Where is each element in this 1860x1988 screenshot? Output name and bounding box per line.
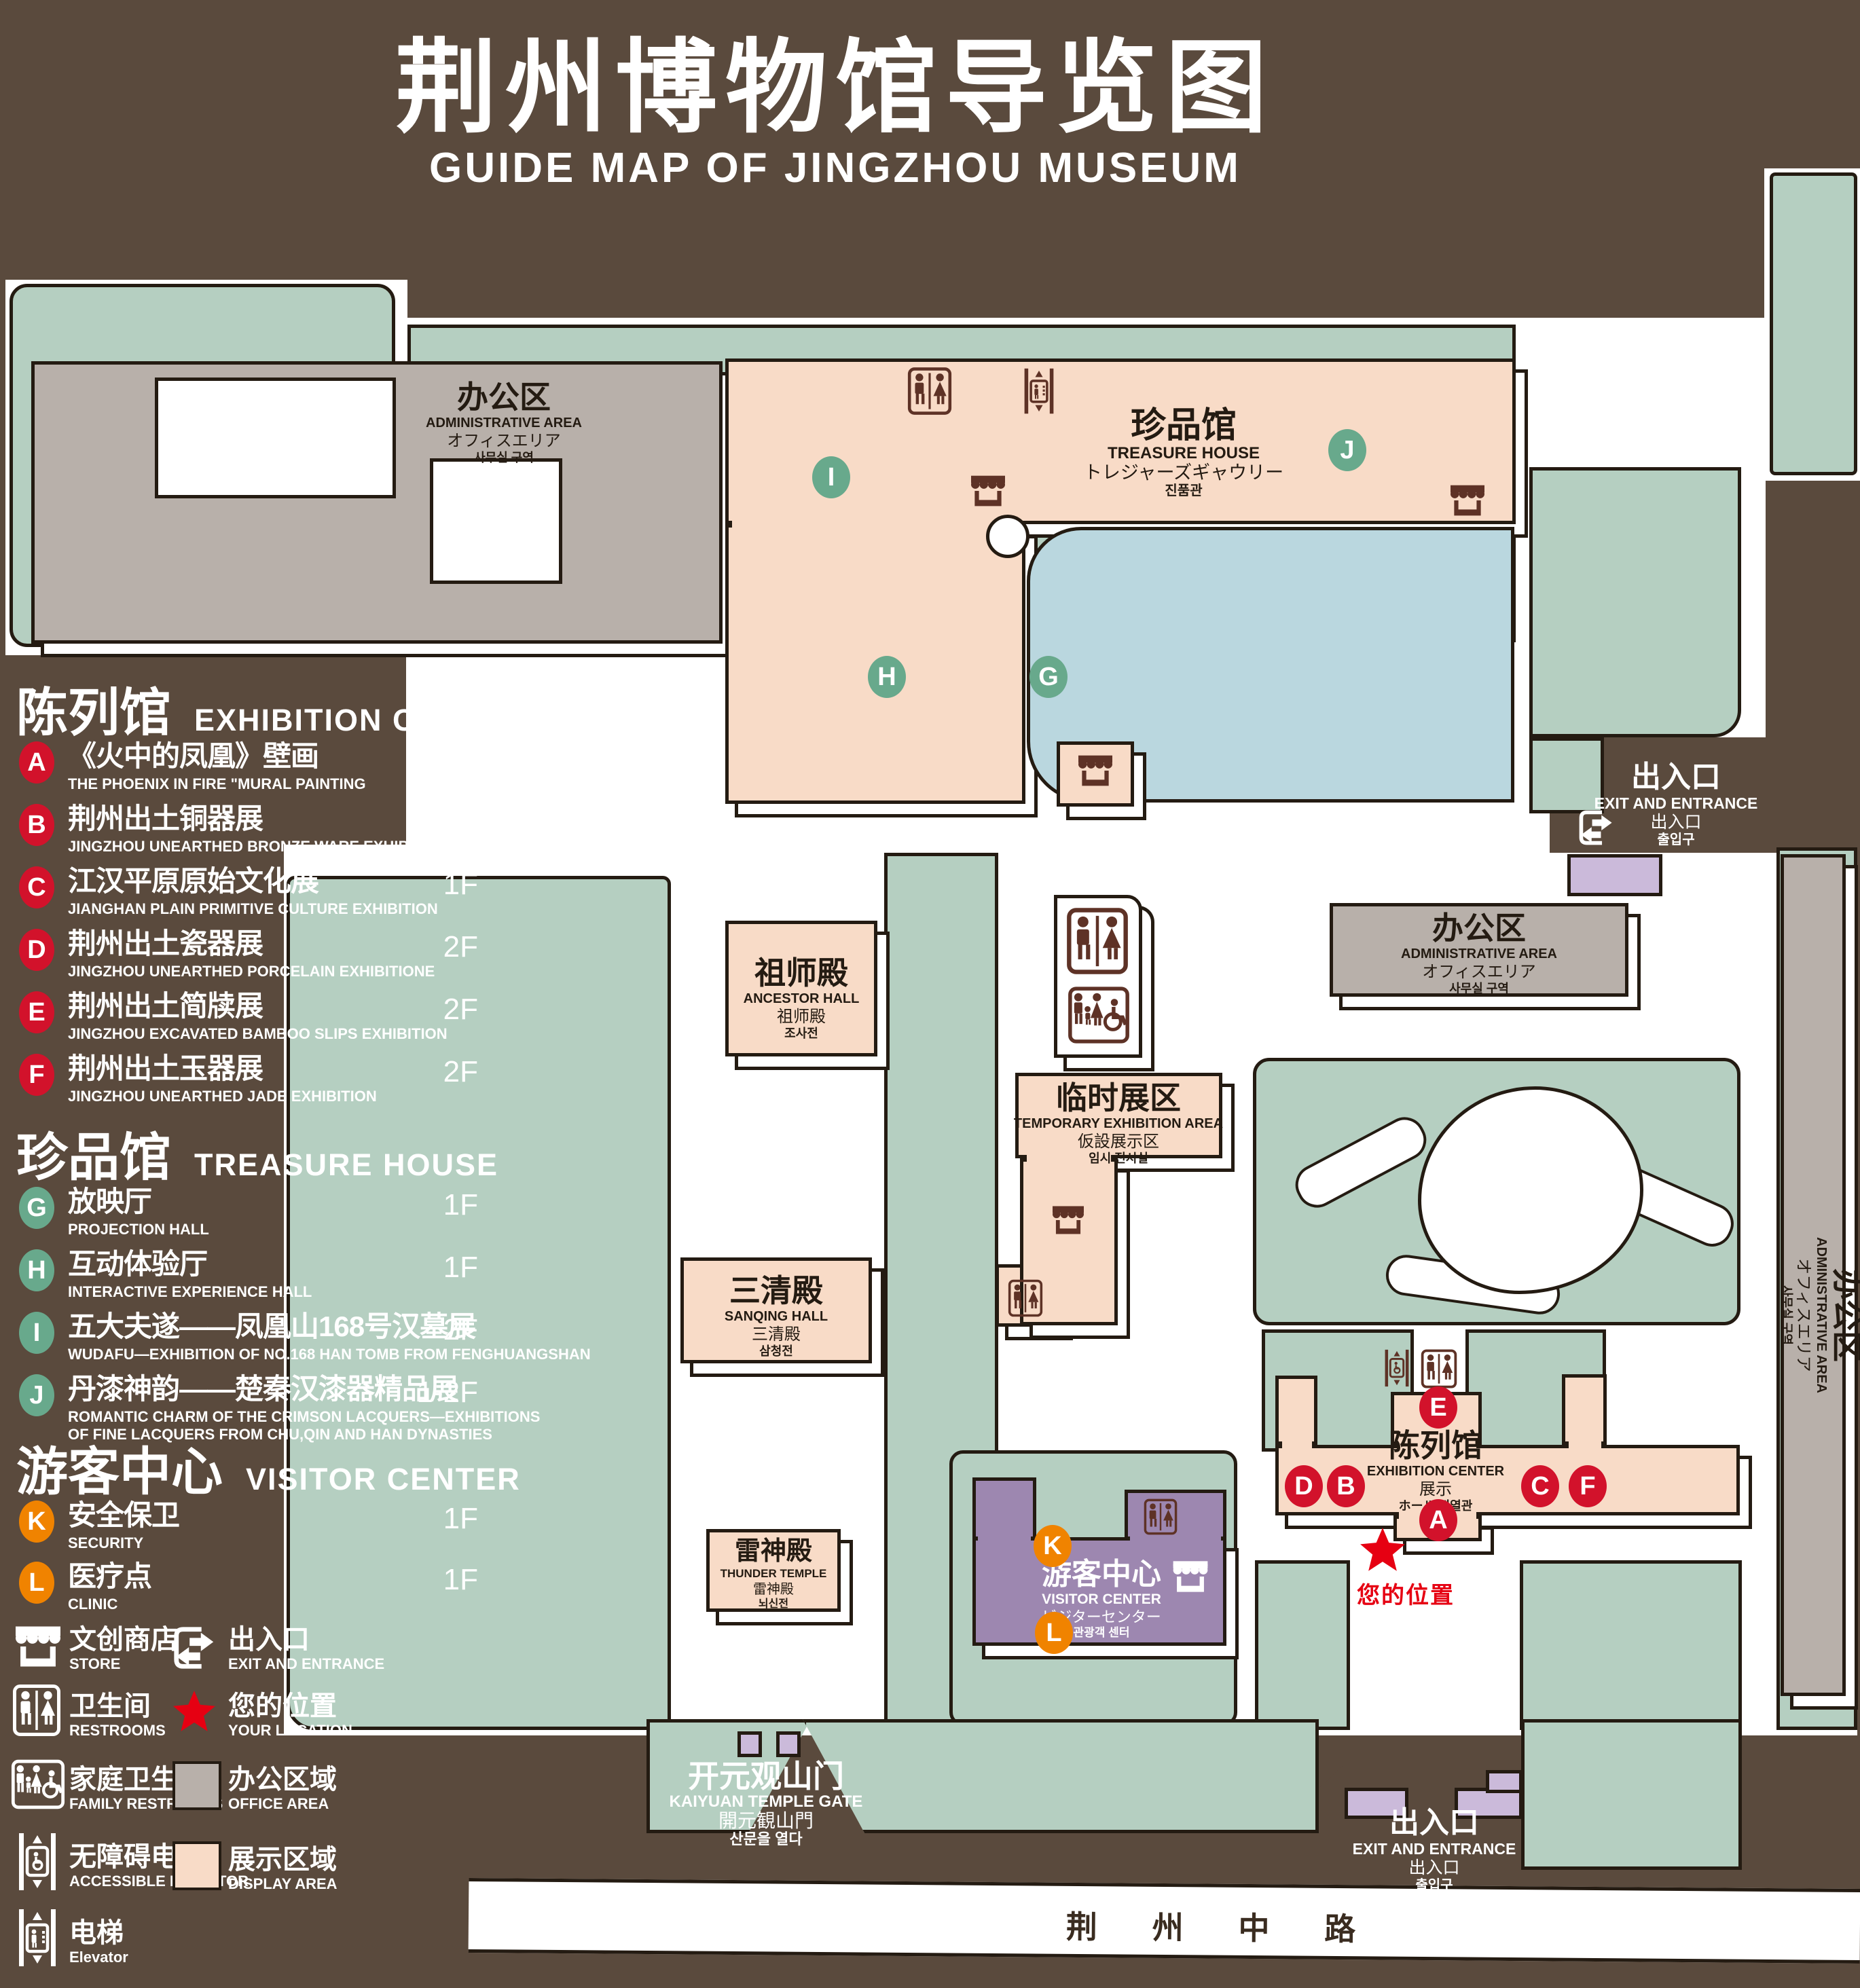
south-exit-label: 出入口 EXIT AND ENTRANCE 出入口 출입구 xyxy=(1332,1806,1536,1894)
visitor-label-ja: ビジターセンター xyxy=(1000,1608,1203,1625)
seam xyxy=(732,517,1019,532)
seam xyxy=(978,1530,1031,1543)
legend-item-A: A 《火中的凤凰》壁画 THE PHOENIX IN FIRE "MURAL P… xyxy=(16,739,505,800)
admin-label-ja: オフィスエリア xyxy=(1330,963,1628,981)
admin-label-zh: 办公区 xyxy=(334,380,674,414)
restrooms-icon xyxy=(1421,1348,1457,1389)
admin-label-zh: 办公区 xyxy=(1830,1142,1860,1488)
symbol-zh: 办公区域 xyxy=(228,1764,337,1795)
legend-section-treasure: 珍品馆 TREASURE HOUSE xyxy=(16,1116,498,1190)
exit-label-en: EXIT AND ENTRANCE xyxy=(1574,794,1778,813)
exhibition-east-tab xyxy=(1562,1374,1607,1445)
legend-item-K: K 安全保卫 SECURITY 1F xyxy=(16,1498,505,1559)
thunder-label-ko: 뇌신전 xyxy=(689,1598,858,1611)
thunder-label-en: THUNDER TEMPLE xyxy=(689,1566,858,1581)
item-zh: 安全保卫 xyxy=(68,1498,179,1533)
marker-D-letter: D xyxy=(1294,1473,1313,1499)
section-title-en: TREASURE HOUSE xyxy=(194,1147,498,1183)
restrooms-icon xyxy=(1065,907,1130,975)
marker-G: G xyxy=(1029,656,1068,698)
admin-label-zh: 办公区 xyxy=(1330,911,1628,945)
item-en: CLINIC xyxy=(68,1596,117,1613)
elevator-icon xyxy=(1020,365,1058,417)
symbol-zh: 您的位置 xyxy=(228,1691,352,1722)
legend-section-visitor: 游客中心 VISITOR CENTER xyxy=(16,1430,521,1505)
badge-J: J xyxy=(19,1374,54,1416)
badge-A: A xyxy=(19,741,54,784)
symbol-en: OFFICE AREA xyxy=(228,1795,337,1813)
visitor-label-ko: 관광객 센터 xyxy=(1000,1625,1203,1640)
restrooms-icon xyxy=(12,1684,61,1737)
item-en: JINGZHOU UNEARTHED BRONZE WARE EXHIBITIO… xyxy=(68,838,449,855)
item-en: JINGZHOU UNEARTHED JADE EXHIBITION xyxy=(68,1088,377,1105)
seam xyxy=(1282,1439,1312,1452)
store-icon xyxy=(1050,1204,1087,1236)
item-en: WUDAFU—EXHIBITION OF NO.168 HAN TOMB FRO… xyxy=(68,1346,591,1363)
road: 荆 州 中 路 xyxy=(469,1878,1860,1964)
admin-east-label-wrap: 办公区 ADMINISTRATIVE AREA オフィスエリア 사무실 구역 xyxy=(1762,1142,1860,1488)
elevator-icon xyxy=(15,1905,60,1970)
symbol-en: Elevator xyxy=(69,1949,128,1966)
marker-K-letter: K xyxy=(1043,1533,1061,1559)
thunder-label-ja: 雷神殿 xyxy=(689,1581,858,1598)
badge-letter: K xyxy=(27,1507,45,1536)
badge-L: L xyxy=(19,1562,54,1604)
item-floor: 2F xyxy=(376,1313,478,1347)
badge-letter: F xyxy=(29,1061,44,1090)
item-en: JINGZHOU UNEARTHED PORCELAIN EXHIBITIONE xyxy=(68,963,435,980)
office-area-swatch xyxy=(172,1761,221,1810)
badge-letter: J xyxy=(29,1381,43,1410)
exit-icon xyxy=(171,1624,219,1672)
admin-label-en: ADMINISTRATIVE AREA xyxy=(334,414,674,432)
item-floor: 1F xyxy=(376,1251,478,1285)
marker-D: D xyxy=(1285,1465,1323,1507)
marker-J-letter: J xyxy=(1340,437,1354,463)
item-floor: 2F xyxy=(376,993,478,1027)
symbol-en: RESTROOMS xyxy=(69,1722,166,1739)
south-exit-building-tab xyxy=(1486,1770,1522,1793)
item-zh: 互动体验厅 xyxy=(68,1247,207,1282)
admin-label-ko: 사무실 구역 xyxy=(1330,981,1628,997)
admin-label-en: ADMINISTRATIVE AREA xyxy=(1330,945,1628,963)
admin-label-ko: 사무실 구역 xyxy=(334,450,674,466)
north-exit-label: 出入口 EXIT AND ENTRANCE 出入口 출입구 xyxy=(1574,760,1778,848)
lake-island xyxy=(986,515,1029,558)
visitor-center-label: 游客中心 VISITOR CENTER ビジターセンター 관광객 센터 xyxy=(1000,1559,1203,1640)
badge-letter: C xyxy=(27,873,45,902)
item-floor: 1F xyxy=(376,805,478,839)
ancestor-hall-label: 祖师殿 ANCESTOR HALL 祖师殿 조사전 xyxy=(699,956,903,1042)
symbol-zh: 电梯 xyxy=(69,1917,128,1949)
item-zh: 放映厅 xyxy=(68,1184,151,1219)
lawn-exhibition-south-east xyxy=(1520,1560,1742,1730)
store-icon xyxy=(1448,483,1487,517)
lawn-south-east xyxy=(1521,1719,1742,1870)
admin-label-ja: オフィスエリア xyxy=(1794,1142,1812,1488)
exit-label-en: EXIT AND ENTRANCE xyxy=(1332,1840,1536,1858)
item-zh: 荆州出土铜器展 xyxy=(68,801,263,836)
accessible-elevator-icon xyxy=(1381,1347,1412,1389)
family-restrooms-icon xyxy=(11,1759,65,1810)
temporary-label-en: TEMPORARY EXHIBITION AREA xyxy=(986,1115,1251,1133)
your-location-star xyxy=(171,1689,217,1733)
gate-label-ko: 산문을 열다 xyxy=(647,1831,885,1847)
admin-east-label: 办公区 ADMINISTRATIVE AREA オフィスエリア 사무실 구역 xyxy=(1779,1142,1860,1488)
exit-label-zh: 出入口 xyxy=(1332,1806,1536,1840)
symbol-en: DISPLAY AREA xyxy=(228,1875,338,1893)
marker-B-letter: B xyxy=(1336,1473,1355,1499)
badge-B: B xyxy=(19,804,54,846)
visitor-label-zh: 游客中心 xyxy=(1000,1559,1203,1590)
item-floor: 1F xyxy=(376,743,478,777)
symbol-en: YOUR LOCATION xyxy=(228,1722,352,1739)
visitor-label-en: VISITOR CENTER xyxy=(1000,1590,1203,1608)
marker-F-letter: F xyxy=(1580,1473,1595,1499)
item-floor: 1-2F xyxy=(376,1376,478,1410)
section-title-en: EXHIBITION CENTER xyxy=(194,703,526,738)
item-en: JINGZHOU EXCAVATED BAMBOO SLIPS EXHIBITI… xyxy=(68,1025,448,1043)
seam xyxy=(1569,1439,1601,1452)
legend-item-F: F 荆州出土玉器展 JINGZHOU UNEARTHED JADE EXHIBI… xyxy=(16,1051,505,1112)
lawn-right-column-top xyxy=(1770,172,1857,475)
legend-symbol-elevator: 电梯 Elevator xyxy=(69,1917,128,1966)
treasure-house-label-zh: 珍品馆 xyxy=(912,407,1455,444)
exit-label-ja: 出入口 xyxy=(1332,1858,1536,1877)
badge-letter: G xyxy=(26,1194,47,1223)
marker-I-letter: I xyxy=(828,464,835,490)
symbol-en: EXIT AND ENTRANCE xyxy=(228,1655,384,1673)
marker-I: I xyxy=(812,456,850,498)
legend-section-exhibition: 陈列馆 EXHIBITION CENTER xyxy=(16,671,526,745)
temporary-label: 临时展区 TEMPORARY EXHIBITION AREA 仮設展示区 임시 … xyxy=(986,1081,1251,1166)
item-zh: 江汉平原原始文化展 xyxy=(68,864,318,899)
exit-label-zh: 出入口 xyxy=(1574,760,1778,794)
item-en: JIANGHAN PLAIN PRIMITIVE CULTURE EXHIBIT… xyxy=(68,900,438,918)
marker-H: H xyxy=(868,656,906,698)
legend-symbol-accessible-elevator: 无障碍电梯 ACCESSIBLE ELEVATOR xyxy=(69,1841,249,1890)
legend-item-I: I 五大夫遂——凤凰山168号汉墓展 WUDAFU—EXHIBITION OF … xyxy=(16,1309,505,1370)
ancestor-label-ko: 조사전 xyxy=(699,1026,903,1042)
item-floor: 2F xyxy=(376,1055,478,1089)
admin-north-label: 办公区 ADMINISTRATIVE AREA オフィスエリア 사무실 구역 xyxy=(334,380,674,466)
display-area-swatch xyxy=(172,1841,221,1890)
thunder-label: 雷神殿 THUNDER TEMPLE 雷神殿 뇌신전 xyxy=(689,1537,858,1611)
treasure-house-label-en: TREASURE HOUSE xyxy=(912,444,1455,462)
gate-label-en: KAIYUAN TEMPLE GATE xyxy=(647,1792,885,1811)
badge-C: C xyxy=(19,866,54,908)
marker-E-letter: E xyxy=(1429,1395,1446,1420)
symbol-zh: 文创商店 xyxy=(69,1624,178,1655)
gate-label-ja: 開元観山門 xyxy=(647,1811,885,1831)
marker-E: E xyxy=(1419,1386,1457,1429)
marker-L-letter: L xyxy=(1046,1620,1061,1646)
admin-center-label: 办公区 ADMINISTRATIVE AREA オフィスエリア 사무실 구역 xyxy=(1330,911,1628,997)
symbol-en: STORE xyxy=(69,1655,178,1673)
badge-letter: H xyxy=(27,1256,45,1285)
badge-letter: I xyxy=(33,1319,41,1348)
item-en: SECURITY xyxy=(68,1534,143,1552)
store-icon xyxy=(1076,754,1115,788)
page-title: 荆州博物馆导览图 xyxy=(0,5,1671,153)
temporary-label-ja: 仮設展示区 xyxy=(986,1133,1251,1151)
temporary-label-zh: 临时展区 xyxy=(986,1081,1251,1115)
legend-symbol-restrooms: 卫生间 RESTROOMS xyxy=(69,1691,166,1739)
legend-symbol-display: 展示区域 DISPLAY AREA xyxy=(228,1844,338,1893)
sanqing-label-ja: 三清殿 xyxy=(674,1325,878,1344)
restrooms-icon xyxy=(1144,1498,1178,1536)
item-en: THE PHOENIX IN FIRE "MURAL PAINTING xyxy=(68,775,366,793)
item-zh: 荆州出土玉器展 xyxy=(68,1051,263,1086)
badge-letter: A xyxy=(27,748,45,777)
north-exit-building xyxy=(1567,854,1662,896)
exhibition-label-en: EXHIBITION CENTER xyxy=(1334,1462,1537,1480)
item-floor: 1F xyxy=(376,868,478,902)
legend-item-G: G 放映厅 PROJECTION HALL 1F xyxy=(16,1184,505,1245)
guide-map-poster: { "title": { "zh": "荆州博物馆导览图", "en": "GU… xyxy=(0,0,1860,1988)
sanqing-label: 三清殿 SANQING HALL 三清殿 삼청전 xyxy=(674,1274,878,1359)
lawn-exhibition-south-west xyxy=(1255,1560,1350,1730)
badge-letter: L xyxy=(29,1568,44,1598)
legend-item-B: B 荆州出土铜器展 JINGZHOU UNEARTHED BRONZE WARE… xyxy=(16,801,505,862)
marker-C: C xyxy=(1521,1465,1559,1507)
item-zh: 《火中的凤凰》壁画 xyxy=(68,739,318,774)
exit-label-ko: 출입구 xyxy=(1574,832,1778,848)
badge-F: F xyxy=(19,1054,54,1096)
sanqing-label-zh: 三清殿 xyxy=(674,1274,878,1308)
badge-letter: E xyxy=(28,998,45,1027)
legend-item-C: C 江汉平原原始文化展 JIANGHAN PLAIN PRIMITIVE CUL… xyxy=(16,864,505,925)
legend-symbol-store: 文创商店 STORE xyxy=(69,1624,178,1673)
legend-item-D: D 荆州出土瓷器展 JINGZHOU UNEARTHED PORCELAIN E… xyxy=(16,926,505,987)
admin-label-en: ADMINISTRATIVE AREA xyxy=(1812,1142,1830,1488)
thunder-label-zh: 雷神殿 xyxy=(689,1537,858,1566)
restrooms-icon xyxy=(907,367,952,416)
restrooms-icon xyxy=(1008,1279,1043,1317)
symbol-en: ACCESSIBLE ELEVATOR xyxy=(69,1873,249,1890)
exhibition-label-zh: 陈列馆 xyxy=(1334,1429,1537,1462)
admin-label-ko: 사무실 구역 xyxy=(1779,1142,1794,1488)
family-restrooms-icon xyxy=(1068,982,1130,1048)
item-zh: 荆州出土简牍展 xyxy=(68,989,263,1024)
section-title-zh: 陈列馆 xyxy=(16,671,171,745)
marker-B: B xyxy=(1327,1465,1365,1507)
badge-D: D xyxy=(19,929,54,971)
page-subtitle: GUIDE MAP OF JINGZHOU MUSEUM xyxy=(0,144,1671,192)
accessible-elevator-icon xyxy=(15,1829,60,1894)
symbol-zh: 卫生间 xyxy=(69,1691,166,1722)
badge-K: K xyxy=(19,1501,54,1543)
your-location-label: 您的位置 xyxy=(1345,1577,1467,1610)
badge-H: H xyxy=(19,1249,54,1291)
item-en: ROMANTIC CHARM OF THE CRIMSON LACQUERS—E… xyxy=(68,1408,540,1426)
marker-J: J xyxy=(1328,429,1366,471)
legend-item-E: E 荆州出土简牍展 JINGZHOU EXCAVATED BAMBOO SLIP… xyxy=(16,989,505,1050)
gate-label-zh: 开元观山门 xyxy=(647,1760,885,1792)
ancestor-label-zh: 祖师殿 xyxy=(699,956,903,990)
exhibition-west-tab xyxy=(1275,1376,1317,1445)
legend-symbol-exit: 出入口 EXIT AND ENTRANCE xyxy=(228,1624,384,1673)
ancestor-label-en: ANCESTOR HALL xyxy=(699,990,903,1008)
store-icon xyxy=(968,474,1008,508)
sanqing-label-en: SANQING HALL xyxy=(674,1308,878,1325)
gate-building xyxy=(776,1731,801,1757)
exit-label-ko: 출입구 xyxy=(1332,1877,1536,1894)
symbol-zh: 展示区域 xyxy=(228,1844,338,1875)
marker-L: L xyxy=(1035,1612,1073,1654)
ancestor-label-ja: 祖师殿 xyxy=(699,1008,903,1026)
symbol-zh: 无障碍电梯 xyxy=(69,1841,249,1873)
item-floor: 1F xyxy=(376,1502,478,1536)
legend-item-L: L 医疗点 CLINIC 1F xyxy=(16,1559,505,1620)
item-floor: 1F xyxy=(376,1563,478,1597)
marker-K: K xyxy=(1034,1525,1072,1567)
exit-label-ja: 出入口 xyxy=(1574,813,1778,832)
item-floor: 1F xyxy=(376,1188,478,1222)
marker-H-letter: H xyxy=(877,664,896,690)
marker-F: F xyxy=(1569,1465,1607,1507)
legend-symbol-location: 您的位置 YOUR LOCATION xyxy=(228,1691,352,1739)
section-title-zh: 游客中心 xyxy=(16,1430,223,1505)
badge-letter: B xyxy=(27,811,45,840)
section-title-zh: 珍品馆 xyxy=(16,1116,171,1190)
gate-label: 开元观山门 KAIYUAN TEMPLE GATE 開元観山門 산문을 열다 xyxy=(647,1760,885,1847)
section-title-en: VISITOR CENTER xyxy=(246,1462,521,1497)
badge-I: I xyxy=(19,1312,54,1354)
sanqing-label-ko: 삼청전 xyxy=(674,1344,878,1359)
road-name: 荆 州 中 路 xyxy=(1066,1902,1379,1950)
badge-G: G xyxy=(19,1187,54,1229)
badge-E: E xyxy=(19,991,54,1033)
legend-item-H: H 互动体验厅 INTERACTIVE EXPERIENCE HALL 1F xyxy=(16,1247,505,1308)
badge-letter: D xyxy=(27,936,45,965)
item-en: INTERACTIVE EXPERIENCE HALL xyxy=(68,1283,312,1301)
marker-C-letter: C xyxy=(1531,1473,1549,1499)
your-location-star xyxy=(1358,1526,1407,1572)
item-floor: 2F xyxy=(376,930,478,964)
marker-A: A xyxy=(1419,1499,1457,1541)
item-en: PROJECTION HALL xyxy=(68,1221,209,1238)
item-zh: 荆州出土瓷器展 xyxy=(68,926,263,961)
store-icon xyxy=(12,1624,64,1669)
admin-courtyard xyxy=(430,458,562,584)
symbol-zh: 出入口 xyxy=(228,1624,384,1655)
lawn-treasure-east xyxy=(1529,467,1741,737)
legend-symbol-office: 办公区域 OFFICE AREA xyxy=(228,1764,337,1813)
item-zh: 医疗点 xyxy=(68,1559,151,1594)
marker-G-letter: G xyxy=(1038,664,1059,690)
admin-label-ja: オフィスエリア xyxy=(334,432,674,450)
temporary-label-ko: 임시 전시실 xyxy=(986,1151,1251,1166)
gate-building xyxy=(737,1731,762,1757)
marker-A-letter: A xyxy=(1429,1507,1447,1533)
